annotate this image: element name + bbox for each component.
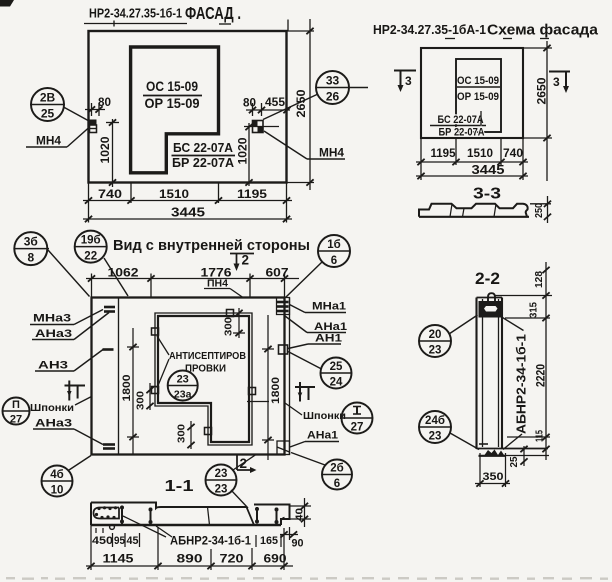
svg-text:БР 22-07А: БР 22-07А (172, 156, 234, 170)
svg-text:ОС 15-09: ОС 15-09 (457, 75, 499, 87)
svg-text:250: 250 (533, 203, 545, 218)
svg-text:3: 3 (405, 74, 412, 88)
svg-text:740: 740 (503, 148, 523, 160)
svg-text:Шпонки: Шпонки (303, 410, 346, 422)
svg-text:165: 165 (260, 535, 278, 547)
svg-text:ПН4: ПН4 (207, 278, 228, 290)
svg-text:23: 23 (215, 484, 228, 496)
svg-text:450: 450 (92, 535, 113, 547)
svg-text:1062: 1062 (108, 268, 139, 280)
svg-text:607: 607 (266, 268, 289, 280)
svg-text:Шпонки: Шпонки (30, 402, 74, 414)
svg-text:Схема фасада: Схема фасада (487, 23, 599, 39)
svg-text:19б: 19б (81, 235, 101, 247)
svg-text:3б: 3б (24, 235, 38, 249)
svg-text:115: 115 (534, 430, 546, 442)
svg-text:10: 10 (51, 485, 64, 497)
svg-text:1195: 1195 (237, 187, 267, 201)
svg-text:45: 45 (127, 535, 139, 547)
svg-text:24: 24 (330, 377, 343, 389)
svg-text:315: 315 (528, 302, 540, 318)
svg-text:27: 27 (10, 414, 22, 426)
svg-text:2220: 2220 (536, 364, 548, 387)
svg-text:АНТИСЕПТИРОВ: АНТИСЕПТИРОВ (169, 350, 246, 362)
svg-text:2б: 2б (330, 463, 344, 475)
svg-text:АНа3: АНа3 (35, 418, 72, 430)
svg-text:МН4: МН4 (319, 148, 345, 160)
svg-text:1020: 1020 (98, 136, 112, 163)
svg-text:26: 26 (326, 90, 340, 104)
svg-text:20: 20 (429, 329, 442, 341)
svg-text:ОР 15-09: ОР 15-09 (145, 96, 200, 111)
svg-text:П: П (12, 399, 20, 411)
svg-text:1145: 1145 (103, 554, 135, 566)
svg-text:АН3: АН3 (38, 360, 68, 372)
svg-text:1800: 1800 (270, 377, 282, 404)
svg-text:27: 27 (351, 422, 364, 434)
svg-text:6: 6 (331, 255, 337, 267)
svg-text:300: 300 (136, 391, 147, 410)
svg-text:4б: 4б (50, 469, 64, 481)
svg-text:2650: 2650 (294, 89, 308, 117)
svg-text:740: 740 (98, 187, 122, 201)
svg-text:90: 90 (292, 538, 304, 550)
svg-text:НР2-34.27.35-1б-1: НР2-34.27.35-1б-1 (89, 6, 182, 21)
svg-text:23: 23 (177, 374, 189, 386)
svg-text:3: 3 (553, 75, 560, 89)
svg-text:АНа1: АНа1 (314, 321, 347, 333)
svg-text:300: 300 (177, 424, 188, 443)
svg-text:80: 80 (98, 97, 111, 109)
svg-text:1510: 1510 (159, 187, 189, 201)
svg-text:1195: 1195 (431, 148, 457, 160)
svg-text:АН1: АН1 (315, 333, 342, 345)
svg-text:ОС 15-09: ОС 15-09 (146, 79, 198, 94)
svg-text:3-3: 3-3 (473, 186, 501, 203)
svg-text:25: 25 (330, 361, 343, 373)
svg-text:МНа3: МНа3 (33, 313, 71, 325)
svg-text:БС 22-07А: БС 22-07А (438, 114, 484, 126)
svg-text:1б: 1б (327, 239, 341, 251)
svg-text:95: 95 (114, 535, 125, 547)
svg-text:АБНР2-34-1б-1: АБНР2-34-1б-1 (515, 334, 529, 434)
svg-text:300: 300 (224, 317, 235, 336)
svg-text:8: 8 (27, 251, 34, 265)
svg-text:АНа3: АНа3 (35, 328, 72, 340)
svg-text:33: 33 (326, 74, 340, 88)
svg-text:3445: 3445 (171, 206, 205, 220)
svg-text:МНа1: МНа1 (312, 301, 346, 313)
svg-text:БС 22-07А: БС 22-07А (173, 141, 233, 155)
svg-text:690: 690 (264, 554, 287, 566)
svg-text:24б: 24б (425, 415, 445, 427)
svg-text:6: 6 (334, 478, 340, 490)
svg-text:22: 22 (84, 251, 97, 263)
svg-text:1510: 1510 (467, 148, 493, 160)
svg-text:2-2: 2-2 (475, 270, 500, 288)
svg-text:2: 2 (242, 253, 250, 268)
svg-text:ФАСАД .: ФАСАД . (185, 3, 241, 23)
svg-text:350: 350 (483, 471, 504, 483)
svg-text:23а: 23а (174, 389, 192, 401)
svg-text:МН4: МН4 (36, 136, 62, 148)
svg-text:890: 890 (177, 554, 203, 566)
svg-text:2В: 2В (40, 91, 56, 105)
svg-text:НР2-34.27.35-1бА-1: НР2-34.27.35-1бА-1 (373, 23, 486, 37)
svg-text:25: 25 (508, 456, 520, 467)
svg-text:23: 23 (429, 345, 442, 357)
svg-text:23: 23 (215, 468, 228, 480)
svg-text:ОР 15-09: ОР 15-09 (457, 91, 499, 103)
svg-text:АБНР2-34-1б-1: АБНР2-34-1б-1 (170, 536, 252, 548)
svg-text:Вид с внутренней стороны: Вид с внутренней стороны (113, 237, 310, 254)
svg-text:3445: 3445 (472, 163, 505, 177)
svg-text:720: 720 (220, 554, 244, 566)
svg-text:1-1: 1-1 (165, 478, 194, 495)
svg-text:455: 455 (265, 97, 286, 109)
svg-text:128: 128 (533, 271, 545, 288)
svg-text:23: 23 (429, 431, 442, 443)
svg-text:25: 25 (41, 107, 55, 121)
svg-text:1020: 1020 (236, 137, 250, 164)
svg-text:АНа1: АНа1 (307, 430, 338, 442)
svg-text:БР 22-07А: БР 22-07А (439, 127, 485, 139)
svg-text:1800: 1800 (121, 375, 133, 402)
